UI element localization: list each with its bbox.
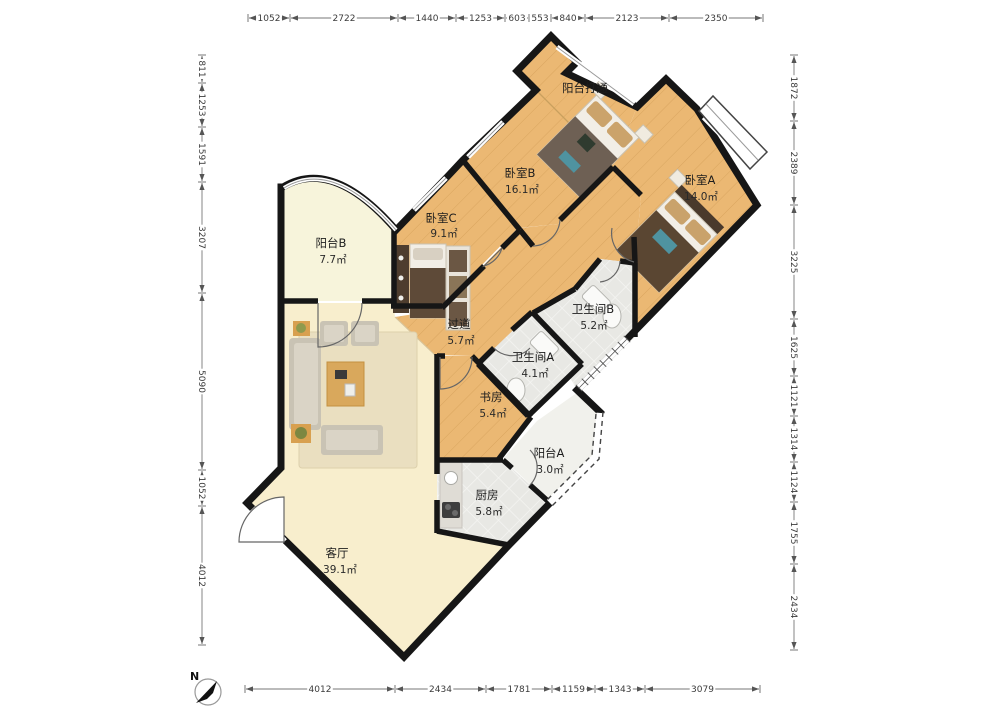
dimension-label: 3079 — [691, 685, 714, 695]
north-label: N — [190, 670, 199, 683]
dimension-label: 5090 — [196, 370, 206, 393]
dimension-label: 1440 — [416, 14, 439, 24]
dimension-label: 2722 — [333, 14, 356, 24]
dimension-label: 1343 — [609, 685, 632, 695]
dimension-label: 2389 — [788, 152, 798, 175]
dimension-label: 1052 — [258, 14, 281, 24]
kitchen-counter — [440, 462, 462, 528]
dimension-label: 811 — [196, 60, 206, 77]
dimension-label: 1124 — [788, 471, 798, 494]
dimension-label: 1755 — [788, 522, 798, 545]
dimension-label: 2350 — [705, 14, 728, 24]
dimension-label: 840 — [559, 14, 576, 24]
dimension-label: 2434 — [788, 596, 798, 619]
dimension-label: 1781 — [508, 685, 531, 695]
dimension-label: 1591 — [196, 143, 206, 166]
north-arrow-icon — [196, 681, 217, 703]
floorplan-image: 阳台打通 卧室B16.1㎡ 卧室A14.0㎡ 卧室C9.1㎡ 阳台B7.7㎡ 过… — [0, 0, 1000, 711]
dimension-label: 603 — [508, 14, 525, 24]
dimension-label: 1625 — [788, 336, 798, 359]
dimension-label: 4012 — [196, 564, 206, 587]
ruler-bottom: 401224341781115913433079 — [245, 684, 760, 696]
dimension-label: 3225 — [788, 251, 798, 274]
dimension-label: 1052 — [196, 477, 206, 500]
ruler-left: 811125315913207509010524012 — [196, 55, 208, 645]
dimension-label: 2434 — [429, 685, 452, 695]
dimension-label: 1314 — [788, 428, 798, 451]
dimension-label: 1872 — [788, 77, 798, 100]
dimension-label: 1253 — [196, 94, 206, 117]
room-label-yangtai-datong: 阳台打通 — [562, 81, 608, 95]
sofa-set — [289, 321, 417, 468]
ruler-right: 187223893225162511211314112417552434 — [788, 55, 800, 650]
compass: N — [190, 670, 221, 705]
dimension-label: 1159 — [562, 685, 585, 695]
ruler-top: 105227221440125360355384021232350 — [248, 13, 763, 25]
dimension-label: 1253 — [469, 14, 492, 24]
floorplan-page: 阳台打通 卧室B16.1㎡ 卧室A14.0㎡ 卧室C9.1㎡ 阳台B7.7㎡ 过… — [0, 0, 1000, 711]
dimension-label: 4012 — [309, 685, 332, 695]
dimension-label: 2123 — [616, 14, 639, 24]
dimension-label: 553 — [531, 14, 548, 24]
dimension-label: 1121 — [788, 385, 798, 408]
dimension-label: 3207 — [196, 226, 206, 249]
